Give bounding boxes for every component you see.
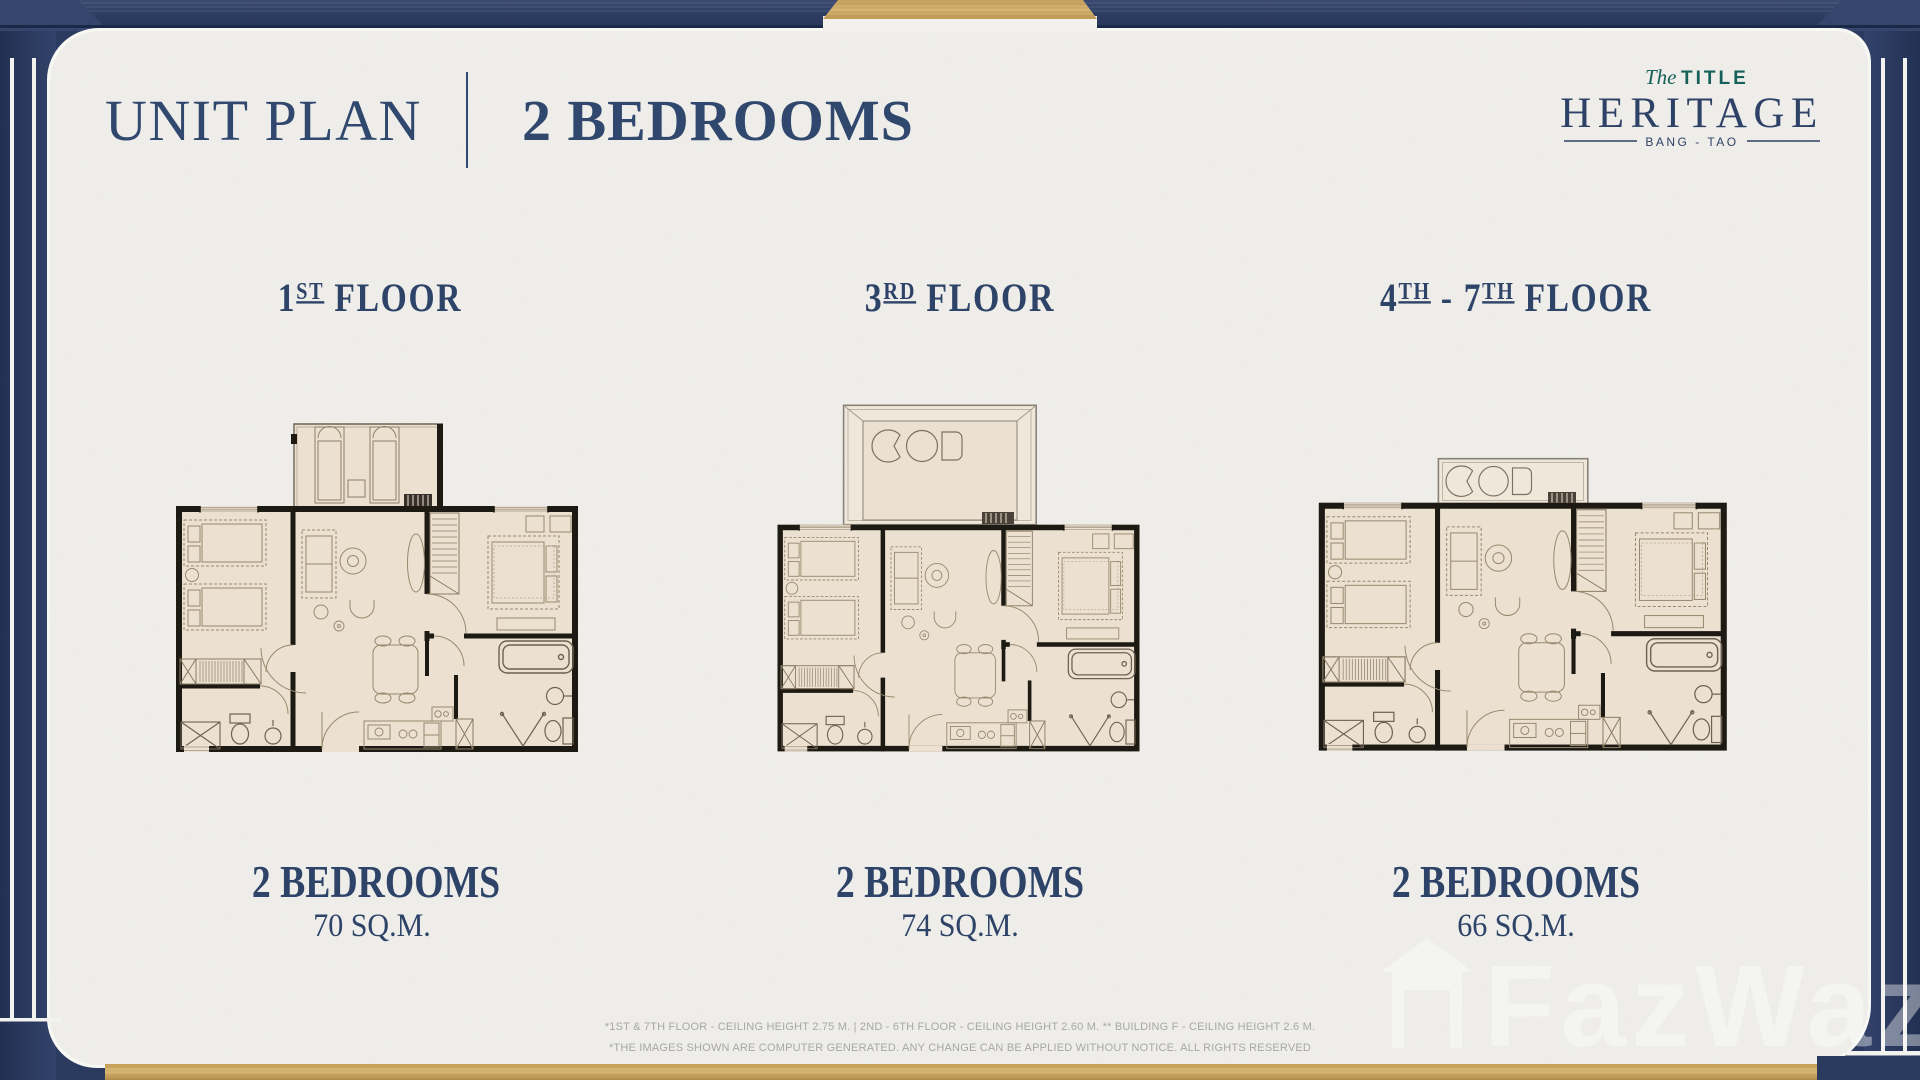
svg-text:BANG - TAO: BANG - TAO	[1645, 135, 1738, 149]
svg-text:TITLE: TITLE	[1681, 68, 1749, 89]
svg-text:2 BEDROOMS: 2 BEDROOMS	[522, 88, 914, 153]
svg-text:66 SQ.M.: 66 SQ.M.	[1457, 907, 1575, 944]
svg-text:*THE IMAGES SHOWN ARE COMPUTER: *THE IMAGES SHOWN ARE COMPUTER GENERATED…	[609, 1042, 1311, 1054]
svg-text:2 BEDROOMS: 2 BEDROOMS	[252, 858, 500, 908]
svg-text:74 SQ.M.: 74 SQ.M.	[901, 907, 1019, 944]
svg-text:FazWaz: FazWaz	[1484, 941, 1920, 1071]
svg-text:70 SQ.M.: 70 SQ.M.	[313, 907, 431, 944]
svg-text:*1ST & 7TH FLOOR - CEILING HEI: *1ST & 7TH FLOOR - CEILING HEIGHT 2.75 M…	[605, 1021, 1315, 1033]
svg-text:HERITAGE: HERITAGE	[1560, 90, 1824, 137]
svg-text:2 BEDROOMS: 2 BEDROOMS	[1392, 858, 1640, 908]
svg-text:UNIT PLAN: UNIT PLAN	[105, 88, 422, 153]
svg-text:2 BEDROOMS: 2 BEDROOMS	[836, 858, 1084, 908]
svg-text:The: The	[1645, 65, 1677, 89]
